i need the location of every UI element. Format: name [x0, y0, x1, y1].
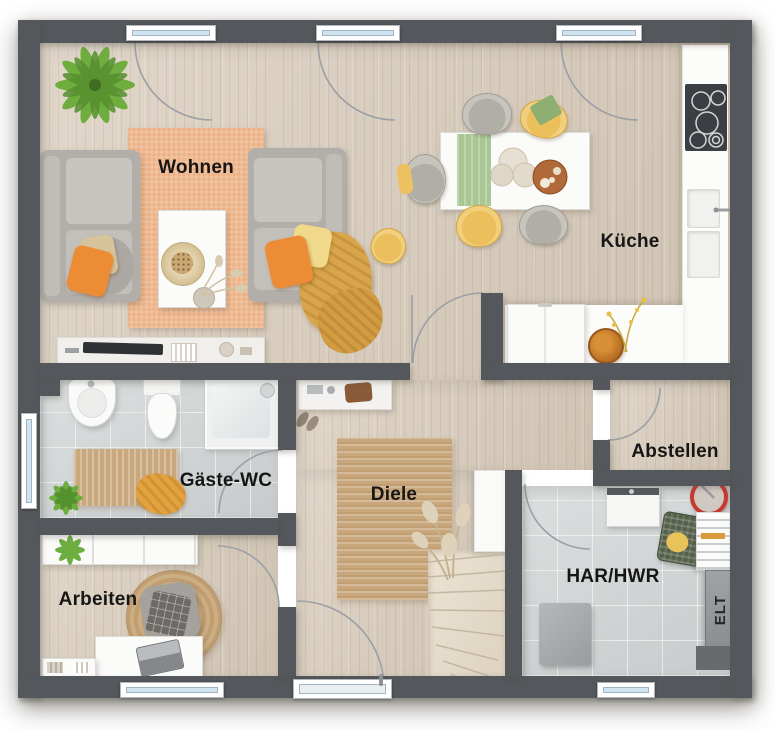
office-shelf	[42, 533, 198, 565]
decor-tray	[161, 242, 205, 286]
window-glass	[603, 687, 649, 693]
basin-bowl	[77, 388, 107, 418]
room-label-diele: Diele	[371, 484, 417, 506]
hung-cloth	[701, 533, 725, 539]
door-handle-icon	[379, 674, 383, 686]
wall-interior	[40, 363, 410, 380]
utility-appliance	[539, 603, 591, 665]
elt-label: ELT	[712, 595, 729, 625]
room-label-kueche: Küche	[600, 231, 659, 253]
door-panel	[299, 684, 386, 694]
dining-chair-gray	[462, 93, 512, 135]
wm-knob	[629, 489, 634, 494]
window-glass	[322, 30, 394, 36]
wall-stub	[40, 379, 60, 396]
cup	[219, 342, 234, 357]
shower-head	[260, 383, 275, 398]
entrance-door	[293, 679, 392, 699]
table-runner	[457, 134, 491, 206]
dining-table	[440, 132, 590, 210]
drying-rack	[696, 512, 732, 570]
wall-interior	[593, 380, 610, 390]
coffee-table	[158, 210, 226, 308]
fruit-bowl	[588, 328, 624, 364]
desk	[95, 636, 203, 678]
wall-interior	[278, 513, 296, 546]
books	[73, 662, 89, 673]
cloth-yellow	[665, 530, 690, 554]
window-glass	[132, 30, 210, 36]
sofa-cushion	[66, 158, 132, 224]
wall-interior	[278, 607, 296, 676]
wall-exterior-left	[18, 20, 40, 698]
room-label-abstellen: Abstellen	[631, 441, 718, 463]
tv	[83, 342, 163, 355]
wall-interior	[481, 363, 730, 380]
fridge	[507, 304, 585, 366]
plaid-blanket	[144, 590, 192, 639]
room-label-gaeste-wc: Gäste-WC	[180, 470, 272, 492]
window-left	[21, 413, 37, 509]
wall-interior	[593, 470, 730, 486]
tray-dots	[171, 252, 193, 274]
cooktop	[685, 84, 727, 151]
window-top-2	[316, 25, 400, 41]
hall-sideboard	[298, 380, 392, 410]
window-bottom-arbeiten	[120, 682, 224, 698]
washing-machine	[606, 487, 660, 527]
books	[47, 662, 63, 673]
decor-small	[327, 386, 335, 394]
sink-basin	[687, 231, 720, 278]
sink-basin	[687, 189, 720, 228]
remote	[65, 348, 79, 353]
laptop	[135, 639, 184, 677]
window-glass	[126, 687, 218, 693]
wall-interior	[40, 518, 278, 535]
fridge-seam	[544, 305, 546, 365]
deco-box	[240, 347, 252, 355]
books	[171, 343, 197, 362]
window-bottom-har	[597, 682, 655, 698]
sofa-back	[44, 156, 60, 296]
room-label-har-hwr: HAR/HWR	[566, 566, 659, 588]
window-glass	[26, 419, 32, 503]
wall-interior	[505, 470, 522, 676]
decor-silver	[307, 385, 323, 394]
shower	[205, 377, 281, 449]
door-mat	[696, 646, 730, 670]
handbag	[344, 382, 373, 403]
dining-chair-gray	[519, 205, 568, 245]
room-label-wohnen: Wohnen	[158, 157, 234, 179]
window-glass	[562, 30, 636, 36]
stair-wall	[474, 470, 508, 552]
room-label-arbeiten: Arbeiten	[59, 589, 138, 611]
wall-interior	[593, 440, 610, 470]
wall-interior	[278, 380, 296, 450]
window-top-3	[556, 25, 642, 41]
sofa-cushion	[254, 158, 322, 222]
window-top-1	[126, 25, 216, 41]
staircase	[428, 550, 506, 676]
low-board	[42, 658, 96, 678]
floor-plan: ELT	[0, 0, 775, 730]
decor-vase	[193, 287, 215, 309]
fridge-handle	[538, 303, 552, 307]
wall-exterior-right	[730, 20, 752, 698]
